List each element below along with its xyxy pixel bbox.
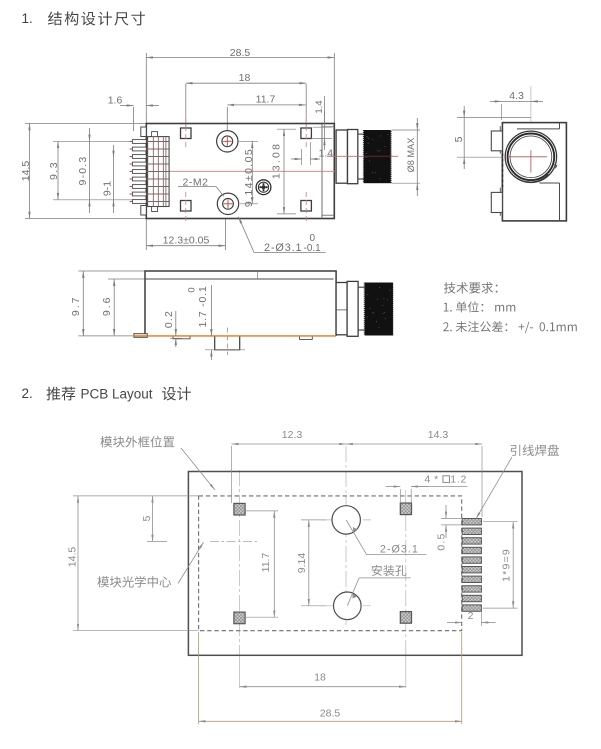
svg-text:2-Ø3.1: 2-Ø3.1 — [264, 242, 302, 254]
svg-text:1.: 1. — [22, 11, 33, 26]
svg-text:0: 0 — [186, 287, 197, 292]
svg-text:12.3±0.05: 12.3±0.05 — [163, 235, 210, 247]
svg-text:0: 0 — [310, 233, 316, 244]
svg-text:9.3: 9.3 — [48, 161, 60, 180]
svg-text:9.6: 9.6 — [101, 295, 113, 316]
svg-text:5: 5 — [141, 516, 153, 522]
svg-text:4 *: 4 * — [424, 474, 438, 486]
svg-text:2.: 2. — [22, 386, 33, 401]
svg-text:13.08: 13.08 — [271, 142, 283, 179]
svg-text:5: 5 — [453, 136, 465, 142]
svg-text:0.5: 0.5 — [435, 532, 447, 550]
svg-text:1.4: 1.4 — [314, 100, 325, 113]
svg-text:14.5: 14.5 — [20, 161, 32, 182]
svg-text:14.3: 14.3 — [428, 429, 449, 441]
svg-text:1.4: 1.4 — [319, 148, 334, 160]
svg-text:9.7: 9.7 — [70, 295, 82, 316]
svg-text:9.14±0.05: 9.14±0.05 — [243, 148, 255, 207]
svg-text:1.6: 1.6 — [108, 95, 123, 107]
svg-text:1.7 -0.1: 1.7 -0.1 — [197, 285, 209, 327]
svg-text:9-1: 9-1 — [101, 181, 113, 196]
svg-text:-0.1: -0.1 — [304, 243, 322, 254]
svg-text:1.2: 1.2 — [450, 474, 467, 486]
svg-text:12.3: 12.3 — [282, 429, 303, 441]
svg-text:PCB Layout: PCB Layout — [81, 387, 153, 402]
svg-text:11.7: 11.7 — [260, 553, 272, 573]
svg-text:9-0.3: 9-0.3 — [77, 156, 89, 186]
svg-text:2-Ø3.1: 2-Ø3.1 — [380, 544, 419, 556]
svg-text:28.5: 28.5 — [230, 47, 251, 59]
svg-text:0.2: 0.2 — [163, 310, 175, 328]
svg-text:18: 18 — [314, 672, 326, 684]
svg-text:28.5: 28.5 — [320, 708, 341, 720]
svg-text:14.5: 14.5 — [67, 547, 79, 568]
svg-text:11.7: 11.7 — [256, 93, 276, 105]
svg-text:18: 18 — [239, 72, 251, 84]
svg-text:2: 2 — [468, 610, 474, 622]
svg-text:1*9=9: 1*9=9 — [501, 548, 513, 582]
svg-text:9.14: 9.14 — [296, 553, 308, 574]
svg-text:Ø8 MAX: Ø8 MAX — [406, 138, 416, 173]
svg-text:4.3: 4.3 — [509, 90, 524, 102]
